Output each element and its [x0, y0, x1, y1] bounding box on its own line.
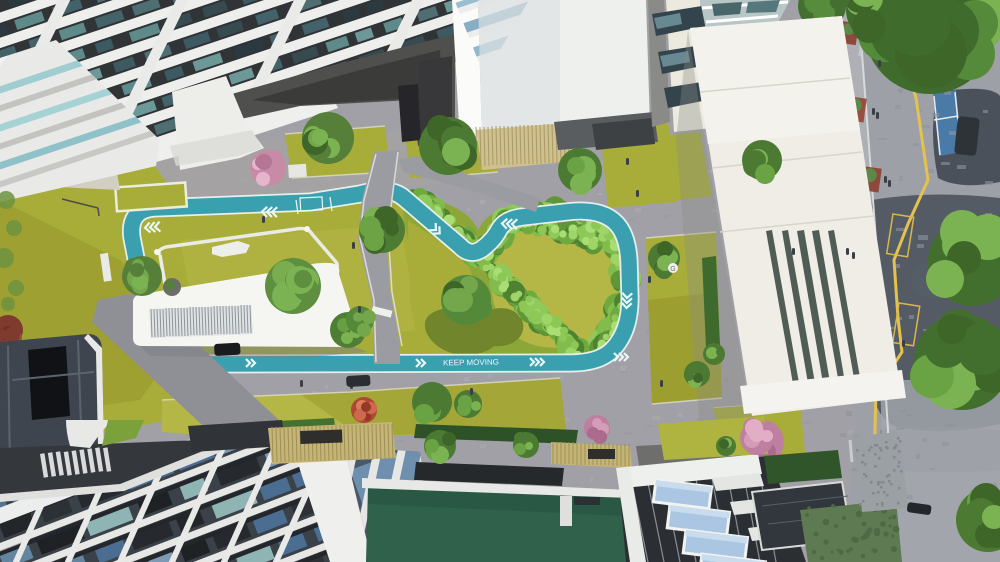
- svg-text:G: G: [670, 266, 675, 273]
- svg-text:KEEP MOVING: KEEP MOVING: [443, 358, 499, 368]
